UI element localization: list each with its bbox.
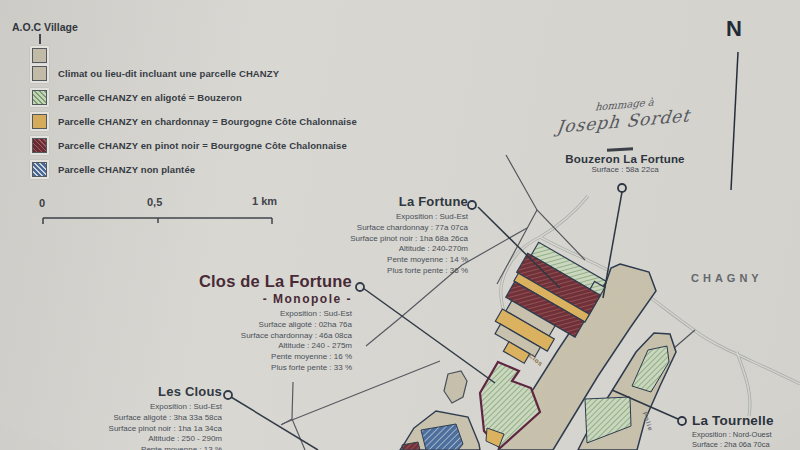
place-details: Exposition : Sud-Est Surface chardonnay …	[350, 212, 468, 277]
legend-item-label: Parcelle CHANZY en aligoté = Bouzeron	[58, 92, 242, 103]
north-label: N	[726, 16, 742, 42]
info-la-tournelle: La Tournelle Exposition : Nord-Ouest Sur…	[692, 413, 774, 449]
non-plantee-swatch	[32, 162, 47, 177]
legend-item-non-plantee: Parcelle CHANZY non plantée	[30, 160, 357, 179]
legend-aoc-label: A.O.C Village	[12, 21, 78, 33]
aligote-swatch	[32, 90, 47, 105]
legend-item-aligote: Parcelle CHANZY en aligoté = Bouzeron	[30, 88, 357, 107]
parcel-group-les-clous	[400, 411, 480, 450]
info-la-fortune: La Fortune Exposition : Sud-Est Surface …	[350, 194, 468, 277]
place-details: Exposition : Nord-Ouest Surface : 2ha 06…	[692, 430, 774, 449]
scale-zero: 0	[39, 197, 45, 209]
legend-item-label: Parcelle CHANZY en pinot noir = Bourgogn…	[58, 140, 347, 151]
legend-item-label: Climat ou lieu-dit incluant une parcelle…	[58, 68, 279, 79]
north-needle	[731, 52, 738, 190]
legend-aoc-tick	[39, 34, 41, 44]
legend-item-label: Parcelle CHANZY en chardonnay = Bourgogn…	[58, 116, 357, 127]
legend-item-chardonnay: Parcelle CHANZY en chardonnay = Bourgogn…	[30, 112, 357, 131]
info-les-clous: Les Clous Exposition : Sud-Est Surface a…	[109, 384, 222, 450]
climat-swatch	[32, 66, 47, 81]
place-subtitle: - Monopole -	[199, 292, 352, 306]
place-title: Clos de La Fortune	[199, 272, 352, 291]
scale-one-km: 1 km	[252, 195, 277, 207]
place-surface: Surface : 58a 22ca	[557, 165, 693, 175]
scale-bar	[43, 218, 272, 224]
scale-half: 0,5	[147, 196, 162, 208]
pinot-noir-swatch	[32, 138, 47, 153]
chardonnay-swatch	[32, 114, 47, 129]
legend-item-climat: Climat ou lieu-dit incluant une parcelle…	[30, 64, 357, 83]
legend-aoc-swatch	[30, 46, 49, 65]
place-title: Les Clous	[109, 384, 222, 399]
place-details: Exposition : Sud-Est Surface aligoté : 0…	[199, 309, 352, 374]
place-details: Exposition : Sud-Est Surface aligoté : 3…	[109, 402, 222, 450]
parcel-small-blob	[444, 371, 467, 403]
vineyard-map-poster: A.O.C Village Climat ou lieu-dit incluan…	[0, 0, 800, 450]
legend-item-label: Parcelle CHANZY non plantée	[58, 164, 195, 175]
place-title: La Tournelle	[692, 413, 774, 428]
aoc-village-swatch	[32, 48, 47, 63]
legend-item-pinot-noir: Parcelle CHANZY en pinot noir = Bourgogn…	[30, 136, 357, 155]
place-title: Bouzeron La Fortune	[557, 153, 693, 165]
town-label-chagny: CHAGNY	[691, 272, 763, 284]
info-bouzeron-la-fortune: Bouzeron La Fortune Surface : 58a 22ca	[557, 153, 693, 175]
place-title: La Fortune	[350, 194, 468, 209]
legend: Climat ou lieu-dit incluant une parcelle…	[30, 64, 357, 184]
info-clos-de-la-fortune: Clos de La Fortune - Monopole - Expositi…	[199, 272, 352, 374]
